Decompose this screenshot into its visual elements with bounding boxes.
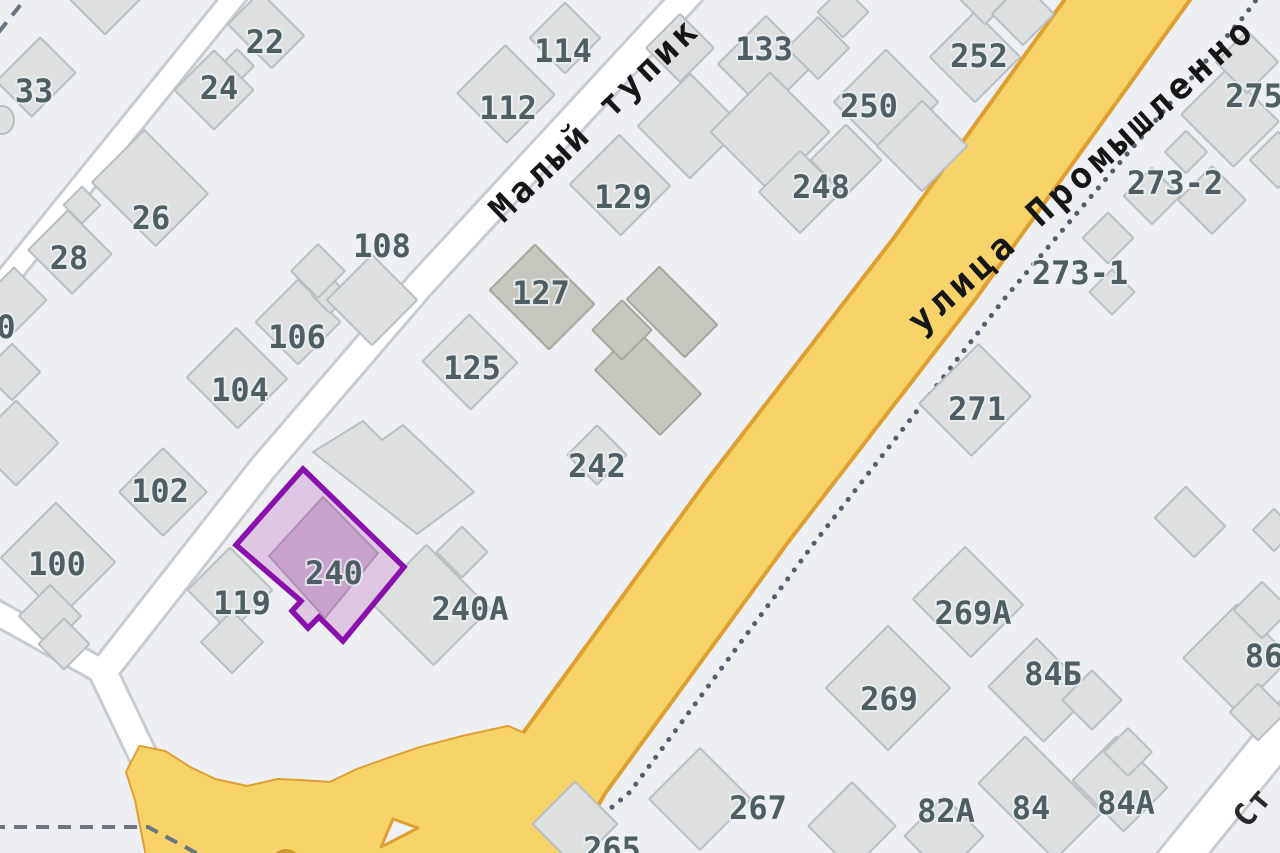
house-number-label: 269А xyxy=(934,594,1011,632)
house-number-label: 240А xyxy=(431,590,508,628)
house-number-label: 125 xyxy=(443,349,501,387)
house-number-label: 133 xyxy=(735,30,793,68)
house-number-label: 86 xyxy=(1245,637,1280,675)
house-number-label: 127 xyxy=(512,274,570,312)
house-number-label: 271 xyxy=(948,390,1006,428)
house-number-label: 26 xyxy=(132,199,171,237)
house-number-label: 114 xyxy=(534,32,592,70)
house-number-label: 129 xyxy=(594,178,652,216)
house-number-label: 84А xyxy=(1097,784,1155,822)
house-number-label: 119 xyxy=(213,584,271,622)
house-number-label: 33 xyxy=(15,72,54,110)
house-number-label: 275 xyxy=(1225,77,1280,115)
house-number-label: 267 xyxy=(729,789,787,827)
house-number-label: 269 xyxy=(860,680,918,718)
house-number-label: 112 xyxy=(479,89,537,127)
house-number-label: 265 xyxy=(583,830,641,853)
map-canvas[interactable]: 2224332628010810610410210011411212512712… xyxy=(0,0,1280,853)
house-number-label: 84 xyxy=(1012,789,1051,827)
house-number-label: 273-2 xyxy=(1127,164,1223,202)
house-number-label: 22 xyxy=(246,23,285,61)
house-number-label: 273-1 xyxy=(1032,254,1128,292)
house-number-label: 100 xyxy=(28,545,86,583)
house-number-label: 108 xyxy=(353,227,411,265)
house-number-label: 252 xyxy=(950,37,1008,75)
house-number-label: 250 xyxy=(840,87,898,125)
house-number-label: 0 xyxy=(0,308,16,346)
house-number-label: 28 xyxy=(50,239,89,277)
house-number-label: 106 xyxy=(268,318,326,356)
house-number-label: 84Б xyxy=(1024,655,1082,693)
house-number-label: 242 xyxy=(568,447,626,485)
house-number-label: 240 xyxy=(305,554,363,592)
map-viewport: 2224332628010810610410210011411212512712… xyxy=(0,0,1280,853)
house-number-label: 102 xyxy=(131,472,189,510)
house-number-label: 248 xyxy=(792,168,850,206)
house-number-label: 24 xyxy=(200,69,239,107)
house-number-label: 82А xyxy=(917,792,975,830)
house-number-label: 104 xyxy=(211,371,269,409)
